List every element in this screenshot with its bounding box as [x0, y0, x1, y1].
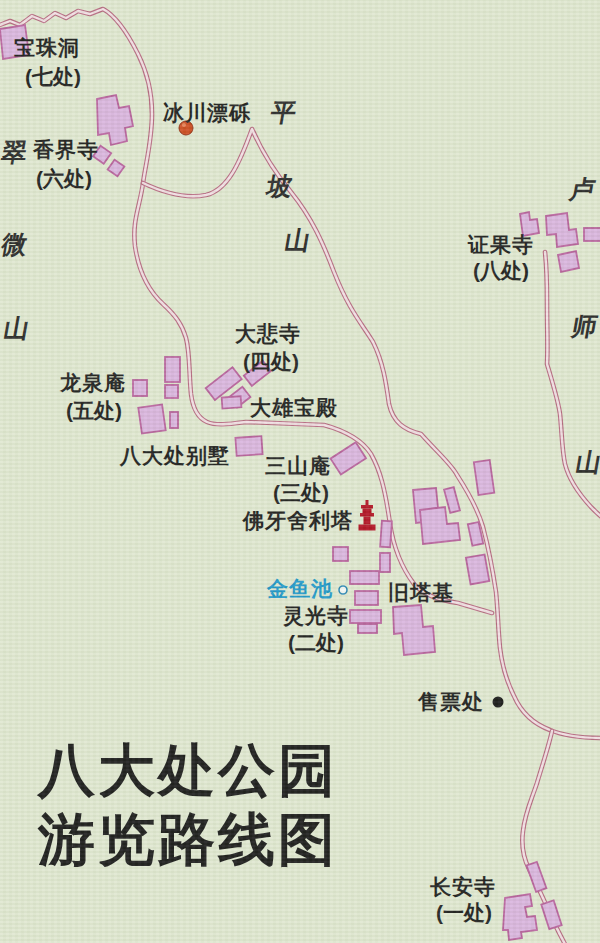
label-shoupiaochu: 售票处	[418, 690, 484, 714]
label-longquanan-sub: (五处)	[66, 397, 122, 425]
building-zhengguosi	[584, 228, 600, 241]
building-jiutaji	[466, 554, 489, 584]
building-longquanan	[170, 412, 178, 428]
mountain-lushi-char: 山	[573, 446, 600, 479]
building-zhengguosi	[558, 251, 579, 272]
building-foya-strip	[333, 547, 348, 561]
building-daxiong-hall	[222, 396, 242, 408]
label-jinyuchi: 金鱼池	[267, 577, 333, 601]
label-lingguangsi-sub: (二处)	[288, 629, 344, 657]
road-lushi-east-inner	[545, 252, 600, 521]
label-baozhudong-sub: (七处)	[25, 63, 81, 91]
building-sanshanan	[331, 442, 367, 474]
building-foya-strip	[380, 553, 390, 572]
building-lingguangsi	[355, 591, 378, 605]
building-lingguangsi	[350, 610, 381, 623]
map-title-line2: 游览路线图	[38, 802, 338, 879]
building-lingguangsi	[350, 571, 379, 584]
pagoda-icon	[359, 500, 376, 531]
label-foyashelita: 佛牙舍利塔	[243, 509, 353, 533]
building-longquanan	[165, 357, 180, 382]
label-badachubieshu: 八大处别墅	[120, 444, 230, 468]
building-lingguangsi	[393, 605, 435, 655]
ticket-office-dot-icon	[493, 697, 504, 708]
label-lingguangsi: 灵光寺	[283, 604, 349, 628]
label-zhengguosi-sub: (八处)	[473, 257, 529, 285]
label-dabeisi: 大悲寺	[235, 322, 301, 346]
badachu-park-route-map: 宝珠洞 (七处) 冰川漂砾 香界寺 (六处) 证果寺 (八处) 大悲寺 (四处)…	[0, 0, 600, 943]
label-changansi: 长安寺	[430, 875, 496, 899]
building-changansi	[541, 900, 561, 929]
building-changansi	[527, 862, 547, 892]
label-xiangjiesi-sub: (六处)	[36, 165, 92, 193]
building-xiangjiesi-annex	[108, 160, 125, 177]
building-lingguangsi	[358, 624, 377, 633]
label-sanshanan-sub: (三处)	[273, 479, 329, 507]
building-xiangjiesi-main	[97, 95, 133, 145]
label-daxiongbaodian: 大雄宝殿	[250, 396, 338, 420]
label-zhengguosi: 证果寺	[468, 233, 534, 257]
building-jiutaji	[444, 487, 460, 513]
label-sanshanan: 三山庵	[265, 454, 331, 478]
building-badachu-villa	[235, 436, 262, 456]
label-bingchuan: 冰川漂砾	[163, 101, 251, 125]
label-changansi-sub: (一处)	[436, 899, 492, 927]
building-jiutaji	[474, 460, 494, 495]
building-zhengguosi	[546, 213, 578, 247]
map-title-line1: 八大处公园	[38, 733, 338, 810]
label-xiangjiesi: 香界寺	[33, 138, 99, 162]
label-baozhudong: 宝珠洞	[14, 36, 80, 60]
pond-circle-icon	[339, 586, 347, 594]
building-longquanan	[133, 380, 147, 396]
building-longquanan	[165, 385, 178, 398]
label-longquanan: 龙泉庵	[60, 371, 126, 395]
building-longquanan	[138, 404, 165, 433]
label-jiutaji: 旧塔基	[388, 581, 454, 605]
building-changansi	[503, 894, 537, 940]
building-foya-strip	[380, 521, 392, 548]
label-dabeisi-sub: (四处)	[243, 348, 299, 376]
